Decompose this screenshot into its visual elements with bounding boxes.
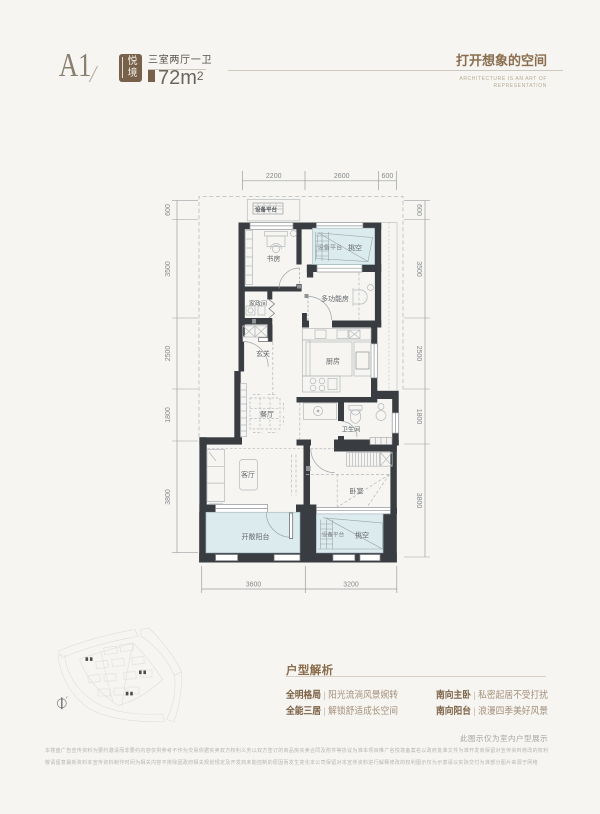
svg-text:2200: 2200 (266, 173, 282, 180)
svg-text:卫生间: 卫生间 (342, 426, 361, 434)
svg-text:多功能房: 多功能房 (321, 294, 349, 303)
svg-text:3500: 3500 (165, 261, 172, 277)
svg-text:600: 600 (415, 204, 422, 216)
svg-text:3600: 3600 (246, 582, 262, 589)
svg-text:挑空: 挑空 (355, 531, 369, 540)
svg-text:餐厅: 餐厅 (260, 410, 274, 419)
svg-text:开敞阳台: 开敞阳台 (242, 532, 270, 541)
svg-text:厨房: 厨房 (326, 357, 340, 366)
svg-text:2500: 2500 (165, 346, 172, 362)
svg-text:设备平台: 设备平台 (322, 531, 345, 539)
svg-text:卧室: 卧室 (350, 487, 364, 496)
svg-text:2600: 2600 (334, 173, 350, 180)
svg-text:设备平台: 设备平台 (255, 206, 278, 214)
svg-text:1800: 1800 (415, 409, 422, 425)
svg-text:玄关: 玄关 (256, 349, 270, 358)
svg-text:3800: 3800 (165, 489, 172, 505)
svg-text:600: 600 (382, 173, 394, 180)
svg-text:600: 600 (165, 204, 172, 216)
svg-text:挑空: 挑空 (348, 243, 362, 252)
svg-text:客厅: 客厅 (241, 470, 255, 479)
svg-text:书房: 书房 (267, 254, 281, 263)
svg-text:1800: 1800 (165, 407, 172, 423)
svg-text:3500: 3500 (415, 261, 422, 277)
svg-text:家政间: 家政间 (249, 300, 267, 308)
svg-text:3800: 3800 (415, 493, 422, 509)
svg-text:2500: 2500 (415, 346, 422, 362)
svg-text:3200: 3200 (343, 582, 359, 589)
svg-text:设备平台: 设备平台 (318, 244, 343, 252)
